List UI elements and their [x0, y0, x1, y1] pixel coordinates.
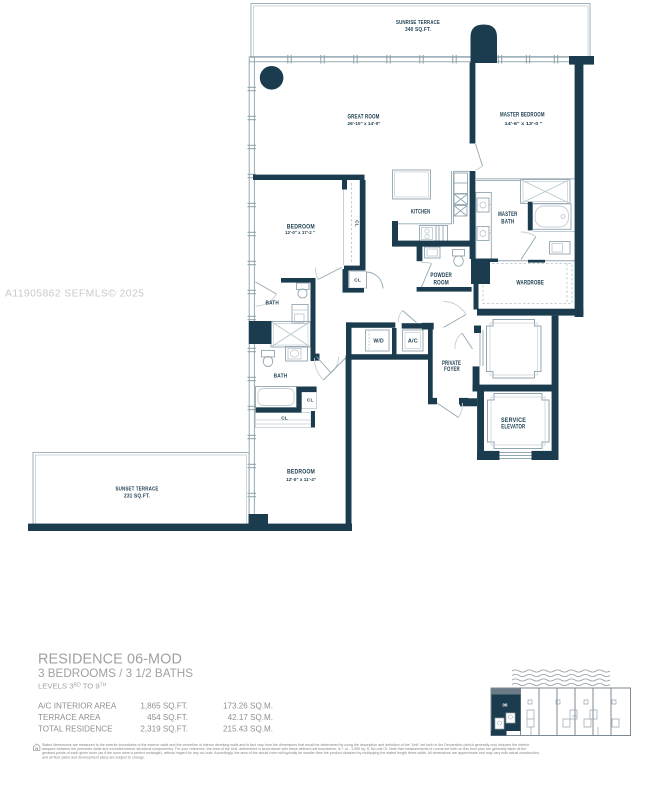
svg-text:LEVELS 3RD TO 9TH: LEVELS 3RD TO 9TH [38, 682, 107, 691]
svg-text:WARDROBE: WARDROBE [516, 281, 544, 287]
svg-text:RESIDENCE 06-MOD: RESIDENCE 06-MOD [38, 652, 182, 668]
svg-text:FOYER: FOYER [444, 367, 460, 373]
svg-text:CL: CL [354, 220, 360, 227]
svg-text:340 SQ.FT.: 340 SQ.FT. [405, 27, 431, 33]
svg-text:W/D: W/D [373, 339, 384, 345]
svg-text:A/C: A/C [408, 339, 418, 345]
svg-text:A11905862 SEFMLS© 2025: A11905862 SEFMLS© 2025 [5, 289, 144, 300]
svg-text:173.26 SQ.M.: 173.26 SQ.M. [223, 702, 273, 711]
svg-text:215.43 SQ.M.: 215.43 SQ.M. [223, 724, 273, 733]
svg-text:12'-0" x 11'-4": 12'-0" x 11'-4" [286, 477, 316, 483]
svg-text:CL: CL [354, 277, 361, 283]
svg-text:SUNRISE TERRACE: SUNRISE TERRACE [396, 20, 440, 26]
svg-text:MASTER BEDROOM: MASTER BEDROOM [500, 113, 545, 119]
svg-text:BATH: BATH [501, 219, 514, 225]
svg-text:MASTER: MASTER [498, 212, 518, 218]
svg-text:CL: CL [281, 415, 288, 421]
svg-text:TOTAL RESIDENCE: TOTAL RESIDENCE [38, 724, 113, 733]
svg-text:26'-10" x 14'-0": 26'-10" x 14'-0" [348, 121, 381, 127]
svg-text:14'-6" x 13'-0 ": 14'-6" x 13'-0 " [505, 121, 543, 127]
svg-text:SUNSET TERRACE: SUNSET TERRACE [116, 487, 159, 493]
svg-text:454 SQ.FT.: 454 SQ.FT. [147, 713, 188, 722]
svg-text:POWDER: POWDER [430, 273, 452, 279]
svg-text:1,865 SQ.FT.: 1,865 SQ.FT. [140, 702, 188, 711]
svg-text:and all floor plans and develo: and all floor plans and development plan… [42, 755, 145, 759]
svg-text:BEDROOM: BEDROOM [287, 470, 315, 476]
svg-text:2,319 SQ.FT.: 2,319 SQ.FT. [140, 724, 188, 733]
svg-text:GREAT ROOM: GREAT ROOM [348, 114, 380, 120]
svg-text:TERRACE AREA: TERRACE AREA [38, 713, 101, 722]
svg-text:BEDROOM: BEDROOM [287, 225, 315, 231]
svg-text:BATH: BATH [266, 300, 279, 306]
svg-text:42.17 SQ.M.: 42.17 SQ.M. [228, 713, 273, 722]
svg-text:12'-0" x 17'-2 ": 12'-0" x 17'-2 " [285, 230, 315, 236]
svg-text:06: 06 [502, 703, 508, 708]
svg-text:PRIVATE: PRIVATE [442, 361, 461, 367]
svg-text:A/C INTERIOR AREA: A/C INTERIOR AREA [38, 702, 117, 711]
svg-text:231 SQ.FT.: 231 SQ.FT. [124, 494, 150, 500]
svg-text:ROOM: ROOM [433, 280, 449, 286]
svg-text:CL: CL [307, 397, 314, 403]
svg-text:ELEVATOR: ELEVATOR [501, 425, 525, 431]
svg-text:3 BEDROOMS / 3 1/2 BATHS: 3 BEDROOMS / 3 1/2 BATHS [38, 667, 193, 680]
svg-text:SERVICE: SERVICE [501, 418, 526, 424]
svg-text:KITCHEN: KITCHEN [411, 209, 430, 215]
svg-text:BATH: BATH [274, 373, 288, 379]
